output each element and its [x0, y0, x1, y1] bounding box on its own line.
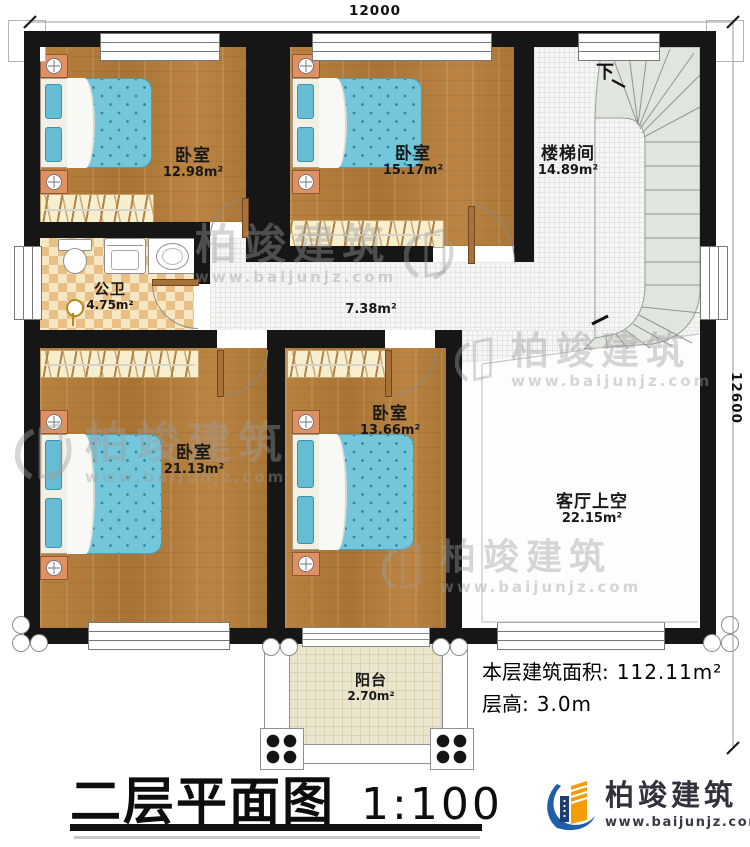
wardrobe	[40, 194, 154, 224]
floor-plan: 卧室 12.98m² 卧室 15.17m² 楼梯间 14.89m² 下 公卫 4…	[0, 0, 750, 847]
room-area: 21.13m²	[164, 463, 224, 478]
floor-height-value: 3.0m	[537, 692, 592, 716]
rail-post-circle	[450, 638, 468, 656]
window	[14, 246, 42, 320]
bed	[40, 78, 152, 168]
corner-circle	[12, 616, 30, 634]
washing-machine	[104, 238, 146, 274]
door-leaf	[385, 350, 392, 397]
title-underline	[70, 824, 482, 831]
nightstand	[292, 552, 320, 576]
room-area: 7.38m²	[345, 303, 396, 318]
floor-area-value: 112.11m²	[617, 660, 722, 684]
sink-counter	[148, 238, 196, 274]
wall	[24, 330, 217, 348]
wardrobe	[40, 350, 199, 378]
room-label-bedroom-bl: 卧室 21.13m²	[144, 439, 244, 483]
rail-post-circle	[262, 638, 280, 656]
wall	[700, 31, 716, 644]
rail-post-circle	[432, 638, 450, 656]
wall	[194, 238, 210, 284]
room-name: 卧室	[372, 405, 408, 425]
brand-website: www.baijunjz.com	[605, 815, 750, 830]
window	[578, 33, 660, 61]
wardrobe	[287, 350, 387, 378]
door-leaf	[152, 279, 199, 286]
room-name: 公卫	[94, 281, 126, 298]
room-label-stairwell: 楼梯间 14.89m²	[518, 140, 618, 184]
floor-area-info: 本层建筑面积: 112.11m²	[482, 656, 722, 685]
nightstand	[40, 556, 68, 580]
window	[497, 622, 665, 650]
nightstand	[40, 170, 68, 194]
wall	[267, 348, 285, 628]
nightstand	[40, 410, 68, 434]
drawing-title-text: 二层平面图	[70, 760, 335, 834]
brand-name: 柏竣建筑	[605, 781, 750, 810]
drawing-scale: 1:100	[361, 779, 503, 830]
sliding-door	[302, 627, 430, 647]
room-area: 22.15m²	[562, 512, 622, 527]
drawing-title: 二层平面图 1:100	[70, 760, 503, 834]
corner-circle	[721, 634, 739, 652]
floor-height-info: 层高: 3.0m	[482, 688, 592, 717]
floor-living-void	[462, 330, 700, 628]
room-name: 卧室	[176, 444, 212, 464]
nightstand	[292, 410, 320, 434]
room-area: 13.66m²	[360, 424, 420, 439]
room-area: 12.98m²	[163, 166, 223, 181]
bed	[292, 434, 414, 550]
corner-circle	[30, 634, 48, 652]
title-underline-light	[74, 836, 480, 839]
staircase	[534, 47, 700, 350]
corner-circle	[12, 634, 30, 652]
toilet	[58, 239, 92, 273]
room-label-balcony: 阳台 2.70m²	[329, 668, 413, 708]
dimension-right: 12600	[728, 358, 744, 438]
corner-circle	[721, 616, 739, 634]
room-label-bedroom-bm: 卧室 13.66m²	[340, 400, 440, 444]
room-name: 卧室	[175, 147, 211, 167]
brand-logo-icon	[543, 776, 597, 834]
room-name: 客厅上空	[556, 493, 628, 513]
wall	[290, 246, 433, 262]
corner-circle	[703, 634, 721, 652]
room-area: 2.70m²	[347, 690, 394, 704]
window	[88, 622, 230, 650]
dimension-top: 12000	[320, 3, 430, 19]
room-name: 阳台	[355, 672, 387, 689]
room-label-bathroom: 公卫 4.75m²	[70, 278, 150, 316]
window	[100, 33, 220, 61]
room-area: 15.17m²	[383, 164, 443, 179]
room-label-bedroom-tl: 卧室 12.98m²	[143, 142, 243, 186]
window	[700, 246, 728, 320]
wall	[24, 222, 210, 238]
door-leaf	[468, 206, 475, 264]
room-area: 4.75m²	[86, 299, 133, 313]
room-name: 卧室	[395, 145, 431, 165]
wall	[246, 47, 290, 262]
room-label-bedroom-tm: 卧室 15.17m²	[363, 140, 463, 184]
room-label-corridor: 7.38m²	[321, 300, 421, 320]
window	[312, 33, 492, 61]
rail-post-circle	[280, 638, 298, 656]
nightstand	[292, 170, 320, 194]
door-leaf	[217, 350, 224, 397]
wall	[446, 330, 462, 628]
floor-area-label: 本层建筑面积:	[482, 656, 609, 685]
floor-height-label: 层高:	[482, 688, 529, 717]
room-name: 楼梯间	[541, 145, 595, 165]
wall	[267, 330, 385, 348]
door-leaf	[242, 198, 249, 238]
room-label-living-void: 客厅上空 22.15m²	[537, 488, 647, 532]
brand-logo: 柏竣建筑 www.baijunjz.com	[543, 776, 750, 834]
stair-down-label: 下	[596, 58, 622, 80]
floor-corridor	[210, 238, 250, 262]
room-area: 14.89m²	[538, 164, 598, 179]
wardrobe	[284, 220, 444, 248]
